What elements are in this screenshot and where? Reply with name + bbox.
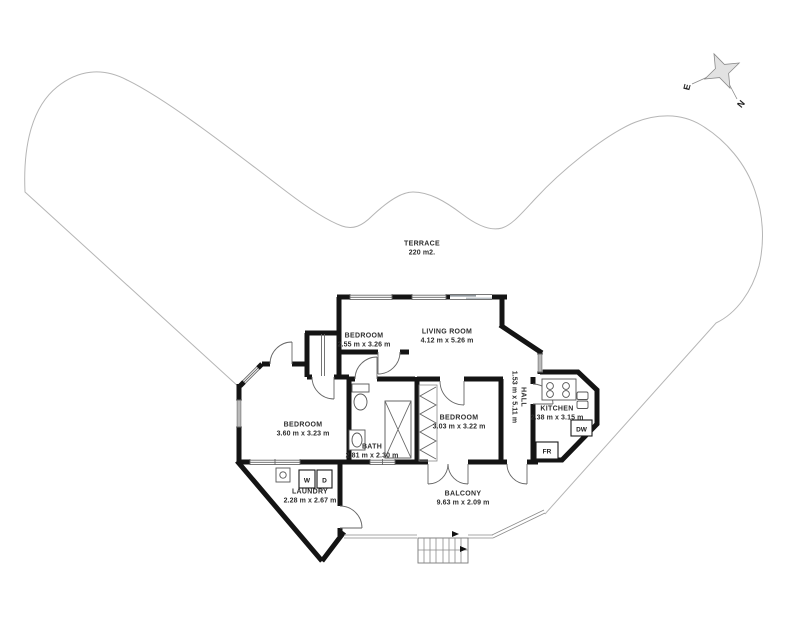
balcony-label: BALCONY 9.63 m x 2.09 m [437,491,490,508]
bedroom-left-label: BEDROOM 3.60 m x 3.23 m [277,422,330,439]
room-dims: 2.55 m x 3.26 m [338,341,391,350]
room-dims: 2.81 m x 2.30 m [346,452,399,461]
room-dims: 3.03 m x 3.22 m [433,423,486,432]
bedroom-middle-label: BEDROOM 3.03 m x 3.22 m [433,415,486,432]
kitchen-sink-icon [577,392,588,400]
dryer-label: D [322,478,327,485]
room-dims: 9.63 m x 2.09 m [437,499,490,508]
bath-label: BATH 2.81 m x 2.30 m [346,444,399,461]
room-name: LAUNDRY [284,489,337,498]
bedroom-top-label: BEDROOM 2.55 m x 3.26 m [338,333,391,350]
compass-east-label: E [681,83,692,91]
room-name: BATH [346,444,399,453]
hall-label: HALL 1.53 m x 5.11 m [510,371,527,423]
floorplan-drawing: E N [0,0,800,640]
sliding-door [450,294,492,299]
laundry-label: LAUNDRY 2.28 m x 2.67 m [284,489,337,506]
dishwasher-label: DW [576,427,588,434]
stairs [418,531,468,563]
room-dims: 3.60 m x 3.23 m [277,430,330,439]
room-name: BEDROOM [277,422,330,431]
fridge-label: FR [543,449,552,456]
room-dims: 2.38 m x 3.15 m [531,414,584,423]
room-dims: 4.12 m x 5.26 m [421,337,474,346]
room-name: BEDROOM [338,333,391,342]
room-name: TERRACE [404,241,440,250]
room-name: BEDROOM [433,415,486,424]
terrace-label: TERRACE 220 m2. [404,241,440,258]
laundry-appliances: W D [276,468,332,488]
room-dims: 1.53 m x 5.11 m [510,371,519,423]
toilet-icon [352,384,369,392]
living-room-label: LIVING ROOM 4.12 m x 5.26 m [421,329,474,346]
compass-north-label: N [735,98,747,109]
room-dims: 2.28 m x 2.67 m [284,497,337,506]
room-name: HALL [518,371,527,423]
compass-rose: E N [681,54,747,110]
compass-star-icon [705,54,739,88]
washer-label: W [304,478,311,485]
room-area: 220 m2. [404,249,440,258]
balcony-railing [344,510,545,538]
stairs-arrow-icon [452,531,459,537]
kitchen-label: KITCHEN 2.38 m x 3.15 m [531,406,584,423]
room-name: KITCHEN [531,406,584,415]
room-name: LIVING ROOM [421,329,474,338]
stove-icon [542,379,576,400]
room-name: BALCONY [437,491,490,500]
floorplan-canvas: E N [0,0,800,640]
